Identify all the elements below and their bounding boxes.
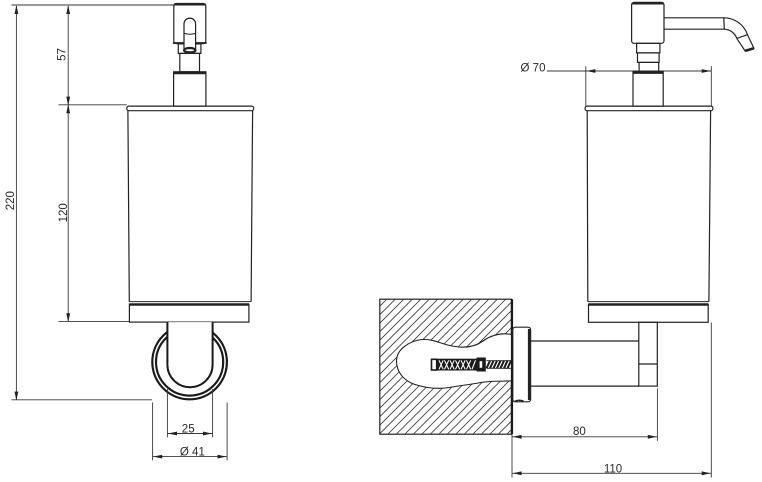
svg-text:110: 110: [604, 464, 622, 476]
svg-text:Ø 41: Ø 41: [180, 447, 205, 459]
svg-text:80: 80: [573, 426, 586, 438]
svg-text:25: 25: [182, 424, 195, 436]
svg-text:57: 57: [57, 48, 69, 61]
svg-text:120: 120: [58, 203, 70, 222]
svg-text:Ø 70: Ø 70: [521, 63, 546, 75]
svg-text:220: 220: [5, 191, 17, 210]
